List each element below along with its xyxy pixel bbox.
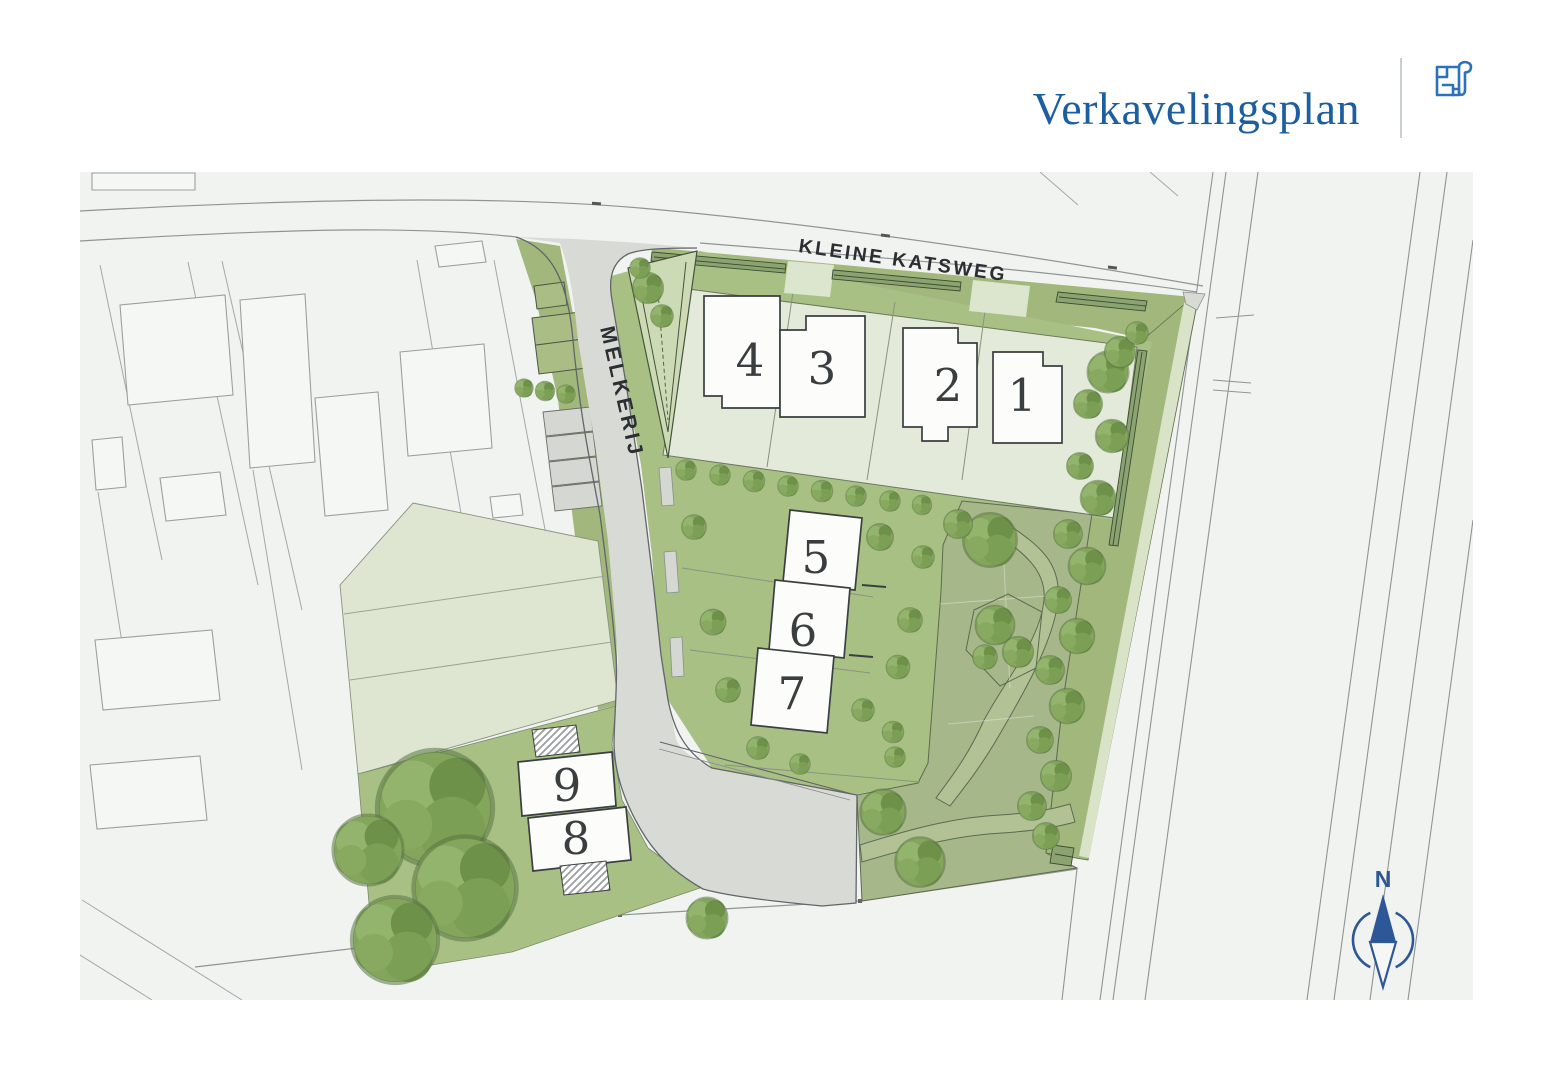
verkavelingsplan-page: Verkavelingsplan	[0, 0, 1546, 1080]
lot-number-1: 1	[1008, 369, 1037, 422]
lot-number-3: 3	[808, 342, 837, 395]
lot-number-9: 9	[553, 759, 582, 812]
page-title: Verkavelingsplan	[1033, 86, 1360, 132]
page-title-text: Verkavelingsplan	[1033, 83, 1360, 134]
compass-north-label: N	[1375, 866, 1392, 892]
site-plan-map: KLEINE KATSWEG MELKERIJ 4 3 2 1 5 6 7 9 …	[80, 172, 1473, 1000]
blueprint-icon	[1430, 54, 1476, 100]
lot-number-2: 2	[934, 359, 963, 412]
header-divider	[1400, 58, 1402, 138]
lot-number-4: 4	[736, 334, 765, 387]
header: Verkavelingsplan	[1033, 54, 1476, 138]
lot-number-8: 8	[562, 812, 591, 865]
lot-number-6: 6	[789, 604, 818, 657]
lot-number-7: 7	[778, 667, 807, 720]
lot-number-5: 5	[802, 531, 831, 584]
site-plan-svg: KLEINE KATSWEG MELKERIJ 4 3 2 1 5 6 7 9 …	[80, 172, 1473, 1000]
